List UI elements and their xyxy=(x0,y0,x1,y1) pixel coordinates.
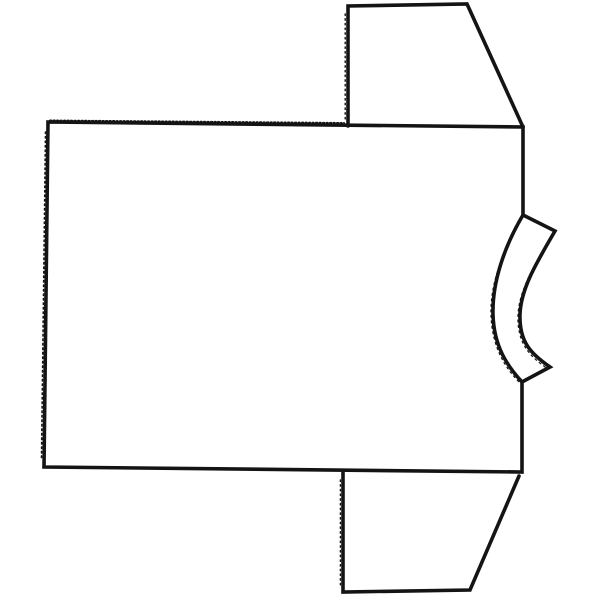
drawing-canvas xyxy=(0,0,600,600)
bottom-sleeve xyxy=(343,471,519,592)
collar-band xyxy=(520,215,555,382)
top-sleeve xyxy=(348,4,523,127)
tshirt-line-drawing xyxy=(0,0,600,600)
shirt-body-outline xyxy=(44,122,523,472)
